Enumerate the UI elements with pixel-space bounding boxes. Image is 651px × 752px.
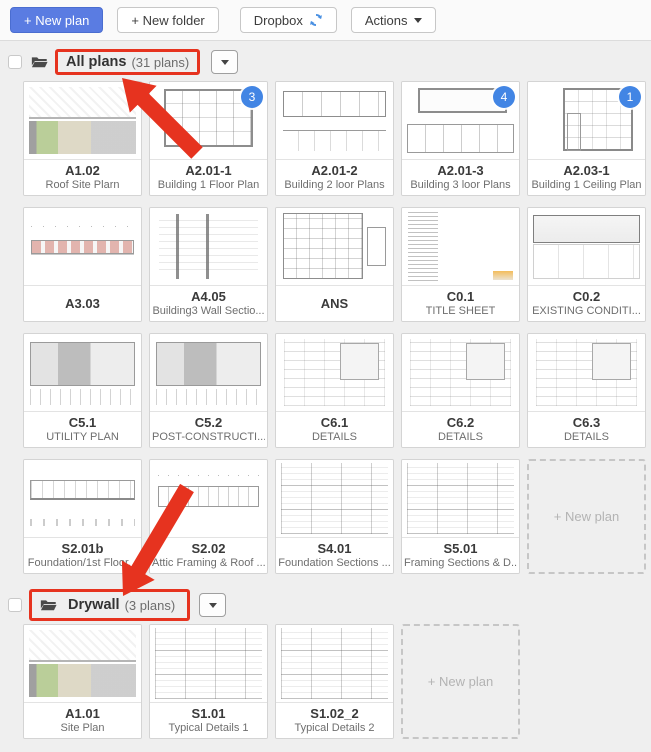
plan-subtitle: Site Plan [60, 722, 104, 735]
plan-thumbnail [528, 334, 645, 411]
section-title-group: All plans (31 plans) [29, 46, 202, 78]
plan-thumbnail [402, 334, 519, 411]
plan-label: A1.01 Site Plan [24, 702, 141, 738]
section-title-group: Drywall (3 plans) [29, 589, 190, 621]
plan-label: S1.02_2 Typical Details 2 [276, 702, 393, 738]
plan-card[interactable]: A2.01-2 Building 2 loor Plans [275, 81, 394, 196]
plan-subtitle: UTILITY PLAN [46, 431, 119, 444]
plan-name: S4.01 [318, 541, 352, 557]
folder-icon [31, 55, 48, 69]
plan-thumbnail [150, 460, 267, 537]
plan-subtitle: Building 3 loor Plans [410, 179, 510, 192]
plan-thumbnail [276, 625, 393, 702]
plan-card[interactable]: S4.01 Foundation Sections ... [275, 459, 394, 574]
actions-label: Actions [365, 13, 408, 28]
plan-thumbnail [528, 208, 645, 285]
plan-thumbnail [276, 82, 393, 159]
plan-thumbnail [276, 208, 393, 285]
plan-subtitle: Attic Framing & Roof ... [152, 557, 265, 570]
plan-name: C6.2 [447, 415, 474, 431]
plan-name: S2.02 [192, 541, 226, 557]
plan-grid: A1.02 Roof Site Plarn 3 A2.01-1 Building… [23, 81, 651, 574]
plan-label: C0.1 TITLE SHEET [402, 285, 519, 321]
plan-card[interactable]: S1.02_2 Typical Details 2 [275, 624, 394, 739]
plan-name: C0.1 [447, 289, 474, 305]
plan-name: S2.01b [62, 541, 104, 557]
plan-card[interactable]: A3.03 [23, 207, 142, 322]
plan-subtitle: Building 2 loor Plans [284, 179, 384, 192]
plan-thumbnail [24, 208, 141, 285]
plan-label: A2.03-1 Building 1 Ceiling Plan [528, 159, 645, 195]
plan-subtitle: Typical Details 1 [168, 722, 248, 735]
plan-subtitle: Building3 Wall Sectio... [152, 305, 264, 318]
plan-card[interactable]: S2.02 Attic Framing & Roof ... [149, 459, 268, 574]
plan-name: A1.02 [65, 163, 100, 179]
plan-thumbnail [24, 334, 141, 411]
plan-card[interactable]: C6.1 DETAILS [275, 333, 394, 448]
plan-name: C5.2 [195, 415, 222, 431]
folder-icon [40, 598, 57, 612]
plan-card[interactable]: A4.05 Building3 Wall Sectio... [149, 207, 268, 322]
plan-subtitle: Framing Sections & D... [404, 557, 517, 570]
plan-card[interactable]: C0.2 EXISTING CONDITI... [527, 207, 646, 322]
plan-subtitle: Foundation Sections ... [278, 557, 391, 570]
plan-label: A4.05 Building3 Wall Sectio... [150, 285, 267, 321]
plan-card[interactable]: ANS [275, 207, 394, 322]
annotation-count-badge[interactable]: 3 [241, 86, 263, 108]
section-header: All plans (31 plans) [8, 47, 651, 77]
plan-card[interactable]: C5.2 POST-CONSTRUCTI... [149, 333, 268, 448]
plan-thumbnail: 1 [528, 82, 645, 159]
plan-name: C5.1 [69, 415, 96, 431]
plan-sections: All plans (31 plans) A1.02 Roof Site Pla… [0, 47, 651, 739]
plan-label: A3.03 [24, 285, 141, 321]
plan-label: A2.01-1 Building 1 Floor Plan [150, 159, 267, 195]
section-header: Drywall (3 plans) [8, 590, 651, 620]
plan-label: C0.2 EXISTING CONDITI... [528, 285, 645, 321]
section-checkbox[interactable] [8, 55, 22, 69]
plan-name: A2.01-1 [185, 163, 231, 179]
plan-card[interactable]: S5.01 Framing Sections & D... [401, 459, 520, 574]
new-folder-button[interactable]: + New folder [117, 7, 218, 33]
plan-thumbnail [276, 460, 393, 537]
plan-thumbnail [150, 625, 267, 702]
section-title[interactable]: Drywall [68, 597, 120, 613]
plan-thumbnail [150, 334, 267, 411]
plan-subtitle: DETAILS [438, 431, 483, 444]
plan-label: C6.3 DETAILS [528, 411, 645, 447]
plan-label: S1.01 Typical Details 1 [150, 702, 267, 738]
section-title-box: All plans (31 plans) [55, 49, 200, 75]
plan-thumbnail: 4 [402, 82, 519, 159]
plan-thumbnail [24, 460, 141, 537]
plan-label: A2.01-2 Building 2 loor Plans [276, 159, 393, 195]
plan-label: S2.02 Attic Framing & Roof ... [150, 537, 267, 573]
plan-label: ANS [276, 285, 393, 321]
plan-subtitle: Building 1 Ceiling Plan [531, 179, 641, 192]
plan-thumbnail [402, 460, 519, 537]
plan-thumbnail [24, 82, 141, 159]
plan-section: All plans (31 plans) A1.02 Roof Site Pla… [8, 47, 651, 574]
plan-card[interactable]: C6.3 DETAILS [527, 333, 646, 448]
plan-name: S5.01 [444, 541, 478, 557]
plan-card[interactable]: 4 A2.01-3 Building 3 loor Plans [401, 81, 520, 196]
plan-card[interactable]: A1.02 Roof Site Plarn [23, 81, 142, 196]
plan-thumbnail: 3 [150, 82, 267, 159]
section-menu-button[interactable] [199, 593, 226, 617]
plan-subtitle: POST-CONSTRUCTI... [152, 431, 265, 444]
plan-card[interactable]: A1.01 Site Plan [23, 624, 142, 739]
chevron-down-icon [209, 603, 217, 608]
plan-card[interactable]: 1 A2.03-1 Building 1 Ceiling Plan [527, 81, 646, 196]
plan-subtitle: TITLE SHEET [426, 305, 496, 318]
plan-name: A3.03 [65, 296, 100, 312]
plan-thumbnail [24, 625, 141, 702]
plan-name: S1.01 [192, 706, 226, 722]
plan-thumbnail [150, 208, 267, 285]
plan-subtitle: DETAILS [312, 431, 357, 444]
plan-name: C0.2 [573, 289, 600, 305]
plan-name: A2.03-1 [563, 163, 609, 179]
plan-label: C6.2 DETAILS [402, 411, 519, 447]
plan-label: S4.01 Foundation Sections ... [276, 537, 393, 573]
new-plan-button[interactable]: + New plan [10, 7, 103, 33]
plan-name: C6.3 [573, 415, 600, 431]
plan-card[interactable]: 3 A2.01-1 Building 1 Floor Plan [149, 81, 268, 196]
new-plan-placeholder[interactable]: + New plan [401, 624, 520, 739]
plan-thumbnail [402, 208, 519, 285]
plan-label: C5.1 UTILITY PLAN [24, 411, 141, 447]
plan-subtitle: DETAILS [564, 431, 609, 444]
section-menu-button[interactable] [211, 50, 238, 74]
section-count: (3 plans) [125, 598, 176, 613]
chevron-down-icon [414, 18, 422, 23]
actions-menu-button[interactable]: Actions [351, 7, 436, 33]
plan-label: A2.01-3 Building 3 loor Plans [402, 159, 519, 195]
section-title[interactable]: All plans [66, 54, 126, 70]
plan-section: Drywall (3 plans) A1.01 Site Plan S1.01 … [8, 590, 651, 739]
plan-name: A2.01-2 [311, 163, 357, 179]
plan-label: S5.01 Framing Sections & D... [402, 537, 519, 573]
plan-thumbnail [276, 334, 393, 411]
plan-subtitle: Typical Details 2 [294, 722, 374, 735]
plan-name: A4.05 [191, 289, 226, 305]
plan-name: A2.01-3 [437, 163, 483, 179]
annotation-count-badge[interactable]: 4 [493, 86, 515, 108]
section-count: (31 plans) [131, 55, 189, 70]
sync-refresh-icon [309, 13, 323, 27]
plan-name: S1.02_2 [310, 706, 358, 722]
plan-card[interactable]: S2.01b Foundation/1st Floor... [23, 459, 142, 574]
plan-card[interactable]: C6.2 DETAILS [401, 333, 520, 448]
section-checkbox[interactable] [8, 598, 22, 612]
new-plan-placeholder[interactable]: + New plan [527, 459, 646, 574]
plan-grid: A1.01 Site Plan S1.01 Typical Details 1 … [23, 624, 651, 739]
plan-label: A1.02 Roof Site Plarn [24, 159, 141, 195]
dropbox-label: Dropbox [254, 13, 303, 28]
plan-name: C6.1 [321, 415, 348, 431]
section-title-box: Drywall (3 plans) [64, 594, 179, 616]
dropbox-sync-button[interactable]: Dropbox [240, 7, 337, 33]
plan-subtitle: Foundation/1st Floor... [28, 557, 137, 570]
plan-label: C6.1 DETAILS [276, 411, 393, 447]
plan-card[interactable]: C0.1 TITLE SHEET [401, 207, 520, 322]
plan-subtitle: Building 1 Floor Plan [158, 179, 260, 192]
plan-name: ANS [321, 296, 348, 312]
plan-label: C5.2 POST-CONSTRUCTI... [150, 411, 267, 447]
plan-card[interactable]: S1.01 Typical Details 1 [149, 624, 268, 739]
annotation-count-badge[interactable]: 1 [619, 86, 641, 108]
toolbar: + New plan + New folder Dropbox Actions [0, 0, 651, 41]
plan-subtitle: EXISTING CONDITI... [532, 305, 641, 318]
plan-card[interactable]: C5.1 UTILITY PLAN [23, 333, 142, 448]
plan-subtitle: Roof Site Plarn [46, 179, 120, 192]
plan-label: S2.01b Foundation/1st Floor... [24, 537, 141, 573]
chevron-down-icon [221, 60, 229, 65]
plan-name: A1.01 [65, 706, 100, 722]
